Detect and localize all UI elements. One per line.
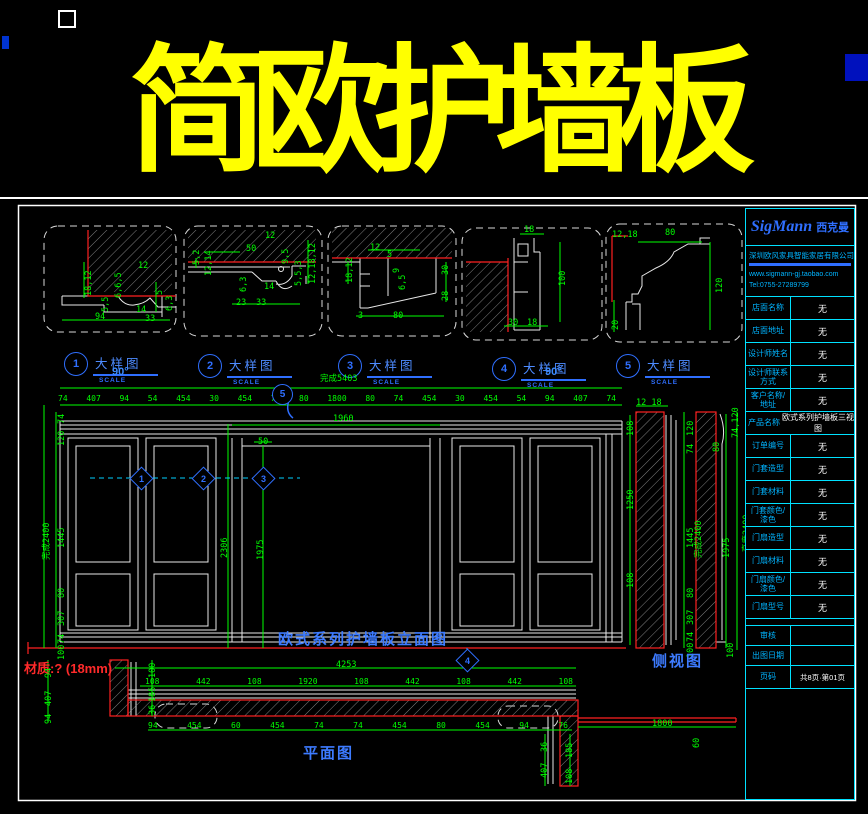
dim: 12 <box>370 243 380 253</box>
detail-2-label: 大样图 <box>227 354 292 378</box>
overall-height-dim: 完成2400 <box>692 521 704 558</box>
dim: 60 <box>692 738 702 748</box>
table-row: 门扇颜色/漆色无 <box>746 573 854 596</box>
dim: 1975 <box>256 540 266 560</box>
company-website: www.sigmann-gj.taobao.com <box>749 270 851 281</box>
dim: 14 <box>264 282 274 292</box>
detail-4-number: 4 <box>492 357 516 381</box>
dim: 28 <box>441 291 451 301</box>
dim: 307 <box>686 610 696 625</box>
dim: 5,5 <box>101 297 111 312</box>
detail-1-number: 1 <box>64 352 88 376</box>
dim: 407 <box>44 691 54 706</box>
logo-bar <box>749 263 851 266</box>
detail-3-label: 大样图 <box>367 354 432 378</box>
table-row: 门扇型号无 <box>746 596 854 619</box>
dim: 74,120 <box>731 407 741 438</box>
table-row: 门扇材料无 <box>746 550 854 573</box>
dim: 74 <box>57 634 67 644</box>
cad-sheet: 简欧护墙板 <box>0 0 868 814</box>
plan-upper-dims: 108 442 108 1920 108 442 108 442 108 <box>145 677 573 688</box>
material-note: 材质:? (18mm) <box>24 658 112 677</box>
dim: 80 <box>665 228 675 238</box>
dim: 100 <box>726 643 736 658</box>
dim: 120 <box>715 278 725 293</box>
dim: 407 <box>540 763 550 778</box>
dim: 18,12 <box>84 270 94 296</box>
dim: 80 <box>712 442 722 452</box>
overall-width-dim: 4253 <box>336 660 356 670</box>
dim: 120 <box>57 431 67 446</box>
dim: 108 <box>626 573 636 588</box>
dim: 5 <box>387 250 392 260</box>
company-phone: Tel:0755-27289799 <box>749 281 851 292</box>
dim: 5 <box>155 290 165 295</box>
detail-1-callout: 1 大样图 SCALE <box>64 352 158 384</box>
overall-height-dim: 完成2400 <box>40 523 52 560</box>
dim: 1975 <box>722 538 732 558</box>
elevation-top-dims: 74 407 94 54 454 30 454 74 80 1800 80 74… <box>58 394 616 405</box>
detail-2-number: 2 <box>198 354 222 378</box>
brand-name-cn: 西克曼 <box>816 219 849 235</box>
dim: 12 <box>138 261 148 271</box>
dim: 1445 <box>57 528 67 548</box>
dim: 30 <box>508 318 518 328</box>
table-row: 门套材料无 <box>746 481 854 504</box>
table-row: 审核 <box>746 625 854 646</box>
dim: 23 <box>236 298 246 308</box>
detail-5-label: 大样图 <box>645 354 710 378</box>
detail-2-callout: 2 大样图 SCALE <box>198 354 292 386</box>
table-row: 客户名称/地址无 <box>746 389 854 412</box>
dim: 74 <box>686 444 696 454</box>
table-row: 出图日期 <box>746 646 854 666</box>
detail-4-scale: SCALE <box>521 382 586 389</box>
detail-1-scale: SCALE <box>93 377 158 384</box>
detail-5-number: 5 <box>616 354 640 378</box>
overall-width-dim: 完成5403 <box>320 372 357 384</box>
angle-label: 90° <box>545 366 562 378</box>
dim: 9,5 <box>281 249 291 264</box>
angle-label: 90° <box>112 366 129 378</box>
brand-logo: SigMann 西克曼 <box>746 209 854 246</box>
dim: 2306 <box>220 538 230 558</box>
table-row: 店面名称无 <box>746 297 854 320</box>
detail-5-callout: 5 大样图 SCALE <box>616 354 710 386</box>
company-name: 深圳欧风家具智能家居有限公司 <box>749 250 851 261</box>
dim: 1800 <box>652 719 672 729</box>
table-row: 设计师联系方式无 <box>746 366 854 389</box>
dim: 120 <box>686 421 696 436</box>
plan-view-title: 平面图 <box>303 742 354 763</box>
plan-bottom-dims: 94 454 60 454 74 74 454 80 454 94 76 <box>148 721 568 732</box>
dim: 80 <box>393 311 403 321</box>
dim: 18 <box>527 318 537 328</box>
dim: 94 <box>44 714 54 724</box>
dim: 80 <box>686 588 696 598</box>
dim: 33 <box>256 298 266 308</box>
side-view-title: 侧视图 <box>652 650 703 671</box>
dim: 108 <box>565 769 575 784</box>
dim: 6,3 <box>165 296 175 311</box>
brand-name-en: SigMann <box>751 218 812 236</box>
dim: 36 <box>540 742 550 752</box>
dim: 18 <box>524 225 534 235</box>
opening-dim: 1960 <box>333 414 353 424</box>
table-row-product: 产品名称欧式系列护墙板三视图 <box>746 412 854 435</box>
dim: 307 <box>57 611 67 626</box>
detail-5-scale: SCALE <box>645 379 710 386</box>
dim: 30 <box>441 265 451 275</box>
dim: 6,5 <box>398 275 408 290</box>
panel-callout-5: 5 <box>272 384 293 405</box>
dim: 185 <box>565 743 575 758</box>
dim: 108 <box>626 421 636 436</box>
dim: 185 <box>148 687 158 702</box>
dim: 12,18,12 <box>308 243 318 284</box>
dim: 100 <box>558 271 568 286</box>
table-row: 设计师姓名无 <box>746 343 854 366</box>
table-row: 店面地址无 <box>746 320 854 343</box>
dim: 36 <box>148 705 158 715</box>
dim: 9 <box>392 268 402 273</box>
table-row: 门扇造型无 <box>746 527 854 550</box>
dim: 20 <box>611 320 621 330</box>
detail-4-callout: 4 大样图 SCALE <box>492 357 586 389</box>
dim: 100 <box>148 663 158 678</box>
dim: 18,12 <box>345 257 355 283</box>
dim: 12,14 <box>204 250 214 276</box>
dim: 33 <box>145 314 155 324</box>
dim: 50 <box>258 437 268 447</box>
dim: 94 <box>95 312 105 322</box>
dim: 50 <box>246 244 256 254</box>
elevation-title: 欧式系列护墙板立面图 <box>278 628 448 649</box>
dim: 12,18 <box>612 230 638 240</box>
dim: 12 <box>265 231 275 241</box>
table-row: 页码共8页·第01页 <box>746 666 854 689</box>
detail-3-scale: SCALE <box>367 379 432 386</box>
table-row: 门套颜色/漆色无 <box>746 504 854 527</box>
dim: 1250 <box>626 490 636 510</box>
dim: 94 <box>44 668 54 678</box>
dim: 74 <box>57 414 67 424</box>
dim: 6,6,5 <box>114 272 124 298</box>
table-row: 订单编号无 <box>746 435 854 458</box>
company-info: 深圳欧风家具智能家居有限公司 www.sigmann-gj.taobao.com… <box>746 246 854 297</box>
dim: 5,2 <box>192 250 202 265</box>
table-row: 门套造型无 <box>746 458 854 481</box>
dim: 74 <box>686 632 696 642</box>
dim: 12 18 <box>636 398 662 408</box>
title-block: SigMann 西克曼 深圳欧风家具智能家居有限公司 www.sigmann-g… <box>745 208 855 800</box>
dim: 5,5,3 <box>294 260 304 286</box>
title-block-empty <box>746 689 854 799</box>
dim: 6,3 <box>239 277 249 292</box>
dim: 80 <box>57 588 67 598</box>
dim: 3 <box>358 311 363 321</box>
